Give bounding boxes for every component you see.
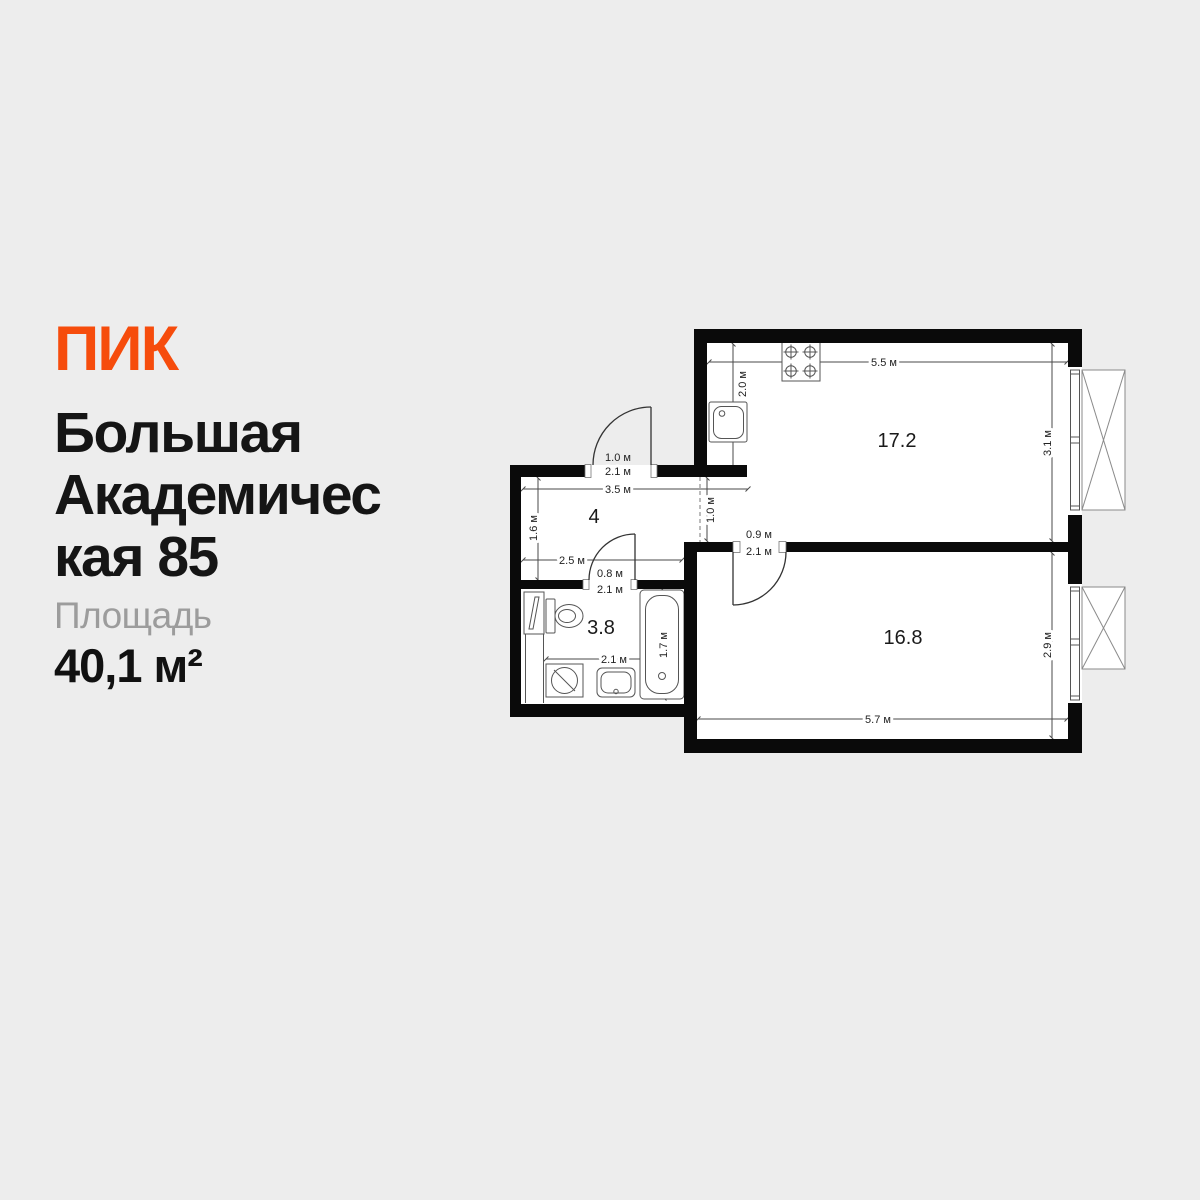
kitchen-area-label: 17.2: [878, 430, 917, 452]
area-value: 40,1 м²: [54, 640, 202, 692]
address-line: кая 85: [54, 526, 380, 588]
jamb: [585, 465, 591, 478]
jamb: [651, 465, 657, 478]
address-line: Большая: [54, 402, 380, 464]
wall-segment: [637, 580, 697, 589]
ac-basket-bedroom: [1082, 587, 1125, 669]
wall-segment: [684, 739, 1082, 753]
washing-machine-icon: [546, 664, 583, 697]
wall-segment: [786, 542, 1082, 552]
apartment-floor: [510, 329, 1082, 753]
wall-segment: [1068, 329, 1082, 367]
wall-segment: [510, 580, 583, 589]
bathroom-area-label: 3.8: [587, 617, 615, 639]
bedroom-door-width: 0.9 м: [746, 529, 772, 541]
jamb: [733, 542, 740, 553]
address-title: Большая Академичес кая 85: [54, 402, 380, 588]
floorplan: 5.5 м 2.0 м 3.1 м 2.9 м 5.7 м 3.5 м 1.6 …: [500, 320, 1140, 760]
entrance-door-width: 1.0 м: [605, 452, 631, 464]
bedroom-window: [1068, 584, 1082, 703]
dim-kitchen-width: 5.5 м: [871, 357, 897, 369]
stove-icon: [782, 342, 820, 381]
wall-segment: [651, 465, 747, 477]
wall-segment: [510, 465, 591, 477]
kitchen-window: [1068, 367, 1082, 515]
dim-passage-width: 1.0 м: [705, 497, 717, 523]
area-label: Площадь: [54, 597, 212, 636]
dim-bathtub-length: 1.7 м: [658, 632, 670, 658]
bathroom-sink-icon: [597, 668, 635, 697]
bathroom-door-width: 0.8 м: [597, 568, 623, 580]
hallway-area-label: 4: [588, 506, 599, 528]
jamb: [631, 580, 637, 590]
address-line: Академичес: [54, 464, 380, 526]
bedroom-door-height: 2.1 м: [746, 546, 772, 558]
bathroom-door-height: 2.1 м: [597, 584, 623, 596]
dim-bathroom-width: 2.1 м: [601, 654, 627, 666]
bedroom-area-label: 16.8: [884, 627, 923, 649]
dim-bedroom-height: 2.9 м: [1042, 632, 1054, 658]
ac-basket-kitchen: [1082, 370, 1125, 510]
jamb: [583, 580, 589, 590]
kitchen-sink-icon: [709, 402, 747, 442]
wall-segment: [694, 329, 707, 477]
listing-card: ПИК Большая Академичес кая 85 Площадь 40…: [0, 0, 1200, 1200]
dim-hall-lower-width: 2.5 м: [559, 555, 585, 567]
wall-segment: [694, 329, 1082, 343]
dim-kitchen-nook: 2.0 м: [737, 371, 749, 397]
wall-segment: [510, 465, 521, 717]
wall-segment: [510, 704, 697, 717]
dim-kitchen-height: 3.1 м: [1042, 430, 1054, 456]
dim-bedroom-width: 5.7 м: [865, 714, 891, 726]
wall-segment: [684, 542, 697, 753]
dim-hall-width: 3.5 м: [605, 484, 631, 496]
pik-logo: ПИК: [54, 318, 177, 381]
jamb: [779, 542, 786, 553]
entrance-door-height: 2.1 м: [605, 466, 631, 478]
dim-hall-height: 1.6 м: [528, 515, 540, 541]
